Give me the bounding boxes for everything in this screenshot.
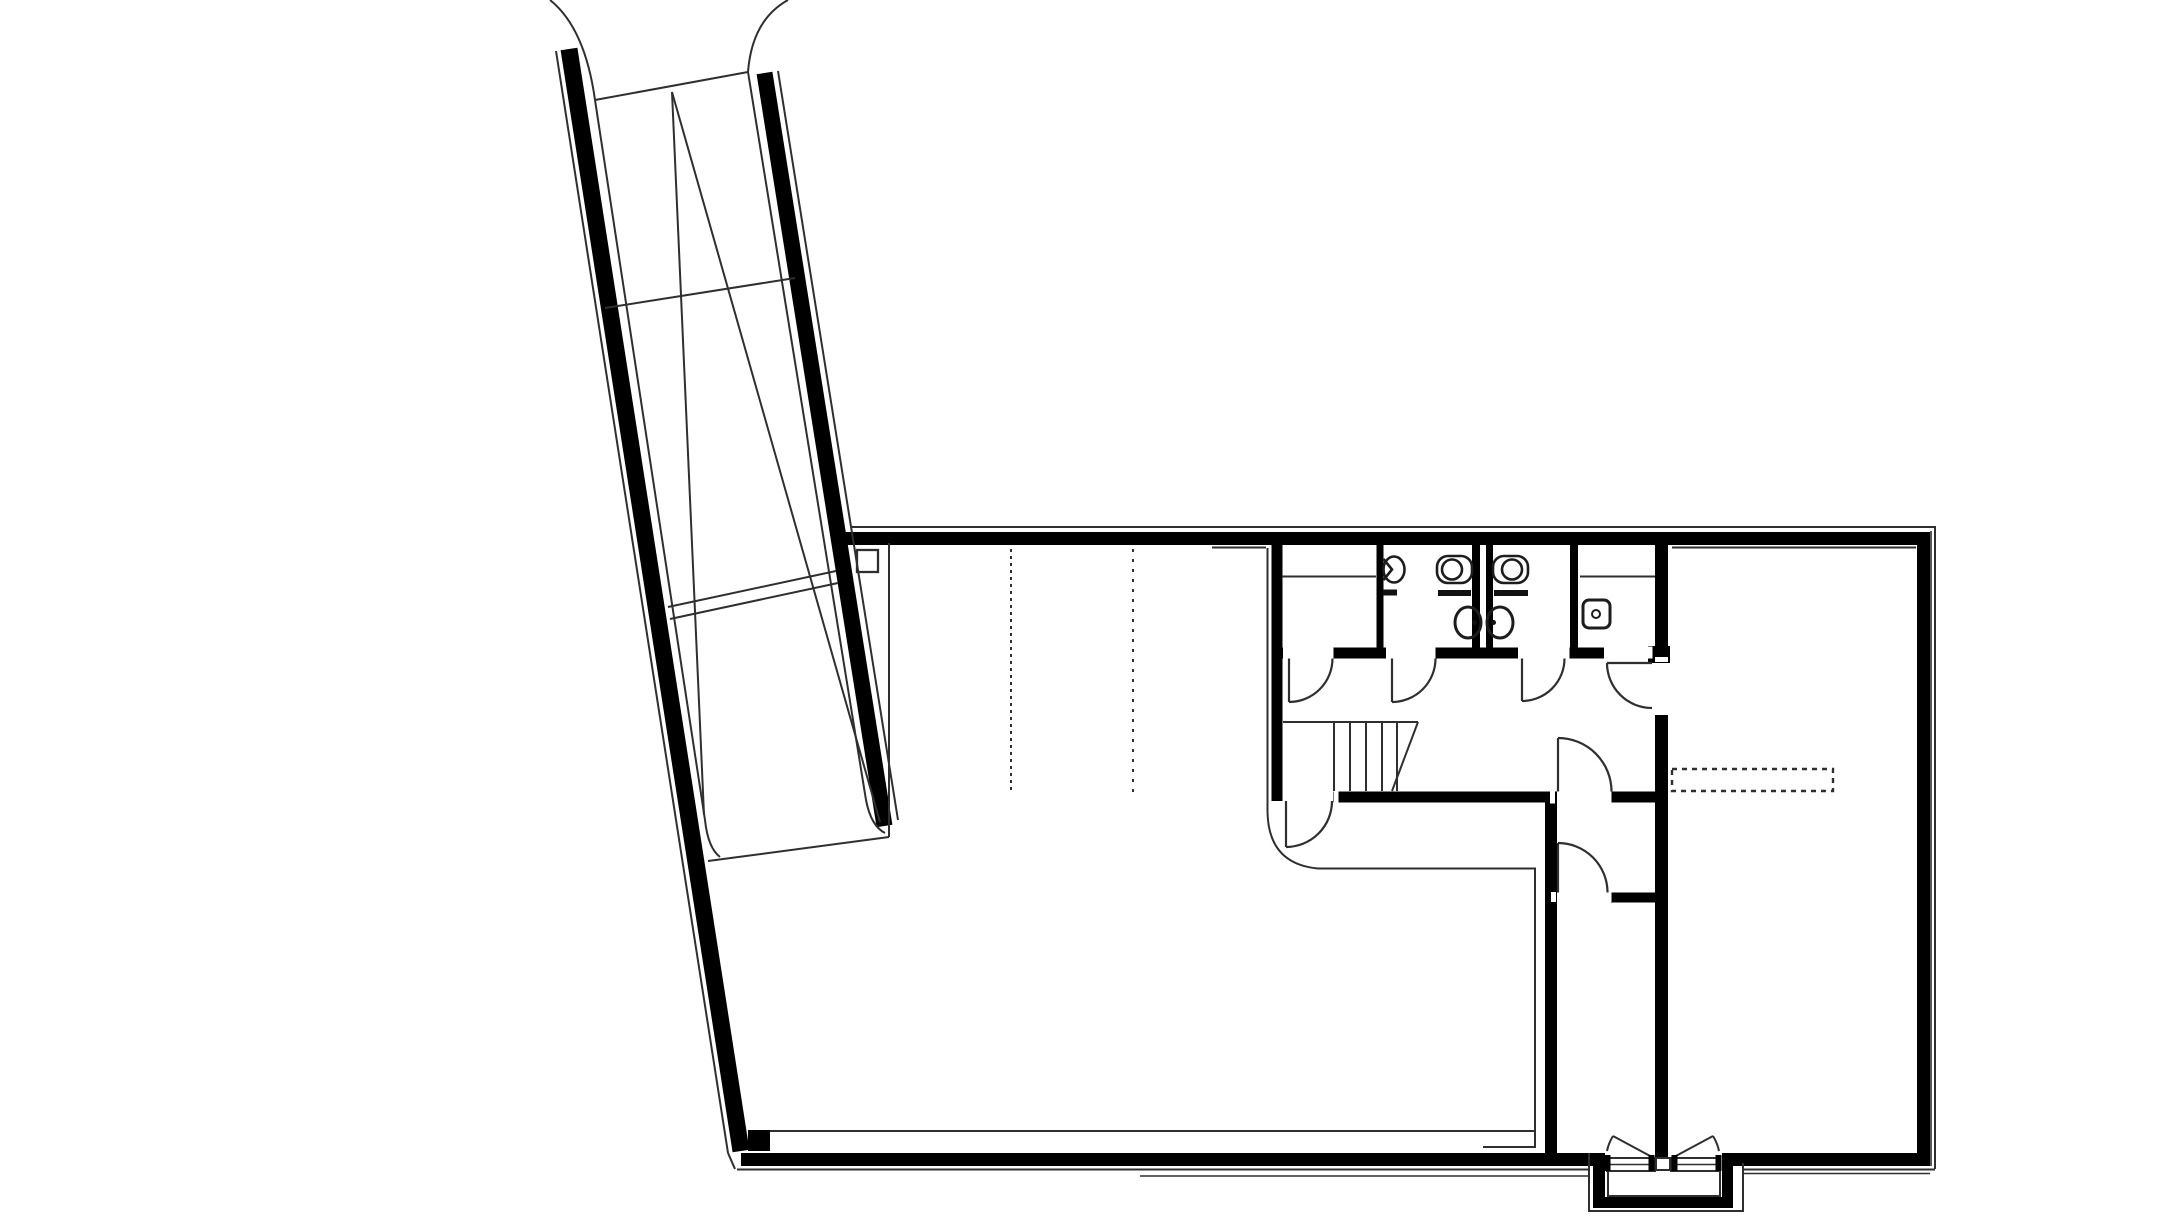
- entrance-block: [1716, 1155, 1722, 1171]
- jamb-mark: [1518, 647, 1523, 659]
- jamb-mark: [1655, 657, 1668, 662]
- toilet-screen-right: [1494, 590, 1528, 596]
- sink-left-tap: [1472, 620, 1477, 625]
- urinal-screen: [1383, 590, 1397, 596]
- jamb-mark: [1607, 792, 1612, 804]
- toilet-screen-left: [1438, 590, 1471, 596]
- jamb-mark: [1604, 647, 1609, 659]
- jamb-mark: [1386, 647, 1391, 659]
- sink-right-tap: [1491, 620, 1496, 625]
- entrance-block: [1649, 1155, 1655, 1171]
- floor-plan-page: [0, 0, 2182, 1221]
- jamb-mark: [1551, 892, 1556, 902]
- jamb-mark: [1648, 647, 1653, 659]
- background: [0, 0, 2182, 1221]
- jamb-mark: [1655, 709, 1668, 714]
- hall-corner-column: [748, 1130, 770, 1151]
- jamb-mark: [1607, 892, 1612, 902]
- floor-plan: [0, 0, 2182, 1221]
- jamb-mark: [1431, 647, 1436, 659]
- jamb-mark: [1334, 792, 1339, 804]
- jamb-mark: [1565, 647, 1570, 659]
- entrance-block: [1672, 1155, 1678, 1171]
- jamb-mark: [1329, 647, 1334, 659]
- entrance-block: [1605, 1155, 1611, 1171]
- jamb-mark: [1550, 792, 1555, 804]
- jamb-mark: [1283, 647, 1288, 659]
